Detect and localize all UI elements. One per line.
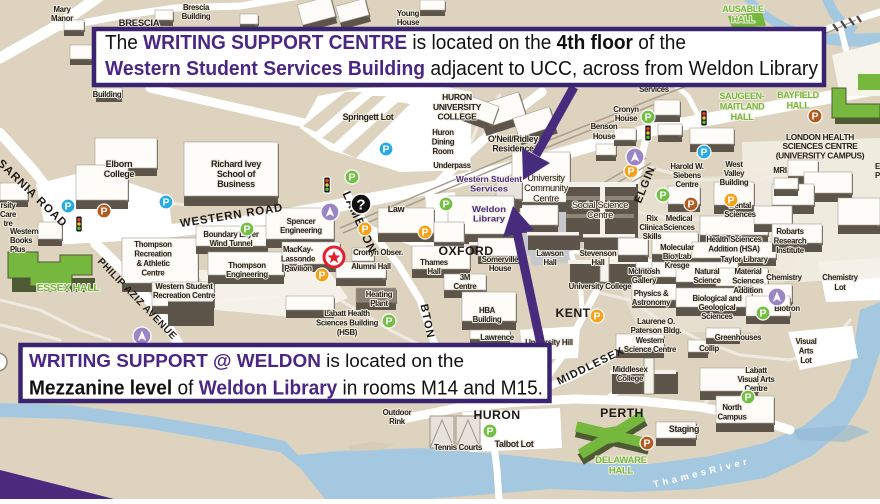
svg-text:Health SciencesAddition (HSA): Health SciencesAddition (HSA) [706,235,762,254]
svg-text:Laurene O.Paterson Bldg.: Laurene O.Paterson Bldg. [631,317,682,335]
svg-text:NaturalScience: NaturalScience [693,267,721,285]
svg-text:BensonHouse: BensonHouse [591,122,618,141]
svg-text:The WRITING SUPPORT CENTRE is: The WRITING SUPPORT CENTRE is located on… [105,32,686,54]
svg-text:P: P [700,147,707,159]
svg-text:WRITING SUPPORT @ WELDON is lo: WRITING SUPPORT @ WELDON is located on t… [29,351,464,371]
svg-text:P: P [643,438,650,450]
svg-text:ThompsonEngineering: ThompsonEngineering [226,261,268,279]
svg-text:P: P [442,199,449,211]
svg-text:Springett Lot: Springett Lot [343,112,394,122]
svg-text:KENT: KENT [555,306,590,320]
svg-text:MedicalSciences: MedicalSciences [663,214,695,232]
svg-text:LONDON HEALTHSCIENCES CENTRE(U: LONDON HEALTHSCIENCES CENTRE(UNIVERSITY … [776,132,865,160]
svg-text:P: P [486,426,493,438]
svg-text:PERTH: PERTH [600,406,644,420]
svg-text:ElbornCollege: ElbornCollege [104,159,135,179]
svg-text:YoungHouse: YoungHouse [397,9,420,27]
svg-text:MaryManor: MaryManor [51,5,73,23]
svg-text:P: P [759,308,766,320]
svg-text:P: P [318,270,325,282]
svg-text:HuronDiningRoom: HuronDiningRoom [432,128,455,156]
svg-text:Building: Building [93,90,122,99]
svg-text:O'Neil/RidleyResidence: O'Neil/RidleyResidence [488,134,538,154]
svg-text:BresciaBuilding: BresciaBuilding [182,3,211,21]
svg-text:Richard IveySchool ofBusiness: Richard IveySchool ofBusiness [211,159,261,189]
svg-text:MaterialSciencesAddition: MaterialSciencesAddition [732,267,764,295]
svg-text:P: P [593,311,600,323]
svg-text:Underpass: Underpass [433,161,472,170]
svg-text:P: P [421,227,428,239]
svg-text:Western Student Services Build: Western Student Services Building adjace… [105,58,818,80]
svg-text:OXFORD: OXFORD [438,244,493,258]
svg-text:?: ? [356,197,365,214]
svg-text:WeldonLibrary: WeldonLibrary [472,204,506,224]
svg-text:P: P [644,112,651,124]
svg-text:Talbot Lot: Talbot Lot [495,439,534,449]
svg-text:P: P [627,166,634,178]
svg-text:P: P [382,144,389,156]
svg-text:Alumni Hall: Alumni Hall [351,262,391,271]
svg-text:P: P [659,190,666,202]
svg-text:Tennis Courts: Tennis Courts [434,443,483,452]
svg-text:ESSEX HALL: ESSEX HALL [37,282,101,294]
svg-text:P: P [64,201,71,213]
svg-text:McIntoshGallery: McIntoshGallery [628,267,660,285]
svg-text:P: P [687,199,694,211]
svg-text:P: P [100,206,107,218]
svg-text:P: P [162,197,169,209]
svg-text:Collip: Collip [699,344,719,353]
svg-text:University College: University College [569,282,633,291]
svg-text:P: P [361,224,368,236]
svg-text:Physics &Astronomy: Physics &Astronomy [632,289,671,307]
svg-text:P: P [243,224,250,236]
svg-text:Staging: Staging [669,424,699,434]
svg-text:Greenhouses: Greenhouses [715,333,762,342]
svg-text:Taylor Library: Taylor Library [720,255,768,264]
svg-text:P: P [727,195,734,207]
svg-text:EigPa: EigPa [875,162,880,180]
svg-text:Chemistry: Chemistry [766,273,802,282]
svg-text:HURON: HURON [473,408,520,422]
svg-text:Law: Law [388,204,406,214]
svg-text:RobartsResearchInstitute: RobartsResearchInstitute [774,227,807,255]
svg-text:Mezzanine level of Weldon Libr: Mezzanine level of Weldon Library in roo… [29,378,543,400]
svg-text:MRI: MRI [773,166,787,175]
svg-text:P: P [385,316,392,328]
svg-text:P: P [811,111,818,123]
svg-text:Lawrence: Lawrence [480,333,515,342]
svg-text:CronynHouse: CronynHouse [613,105,639,123]
svg-text:P: P [744,392,751,404]
svg-text:MolecularBio. LabKresge: MolecularBio. LabKresge [660,243,694,270]
svg-text:Western StudentRecreation Cent: Western StudentRecreation Centre [153,282,216,300]
svg-text:MacKay-LassondePavilion: MacKay-LassondePavilion [281,245,316,273]
svg-text:P: P [348,172,355,184]
